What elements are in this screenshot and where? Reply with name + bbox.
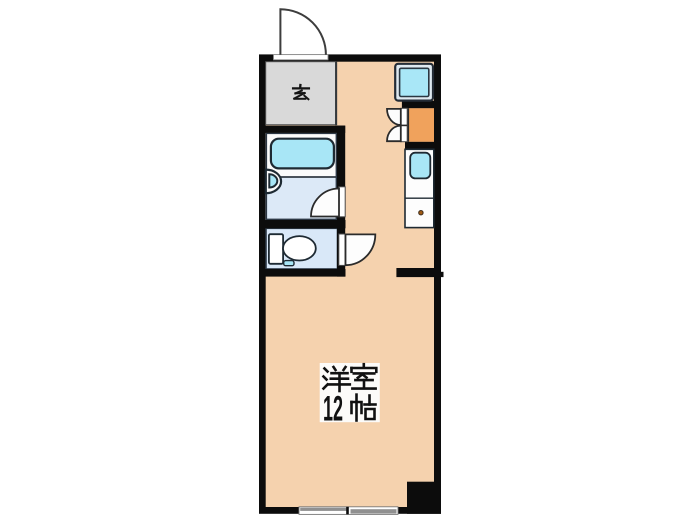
svg-text:12: 12 [323, 390, 343, 429]
